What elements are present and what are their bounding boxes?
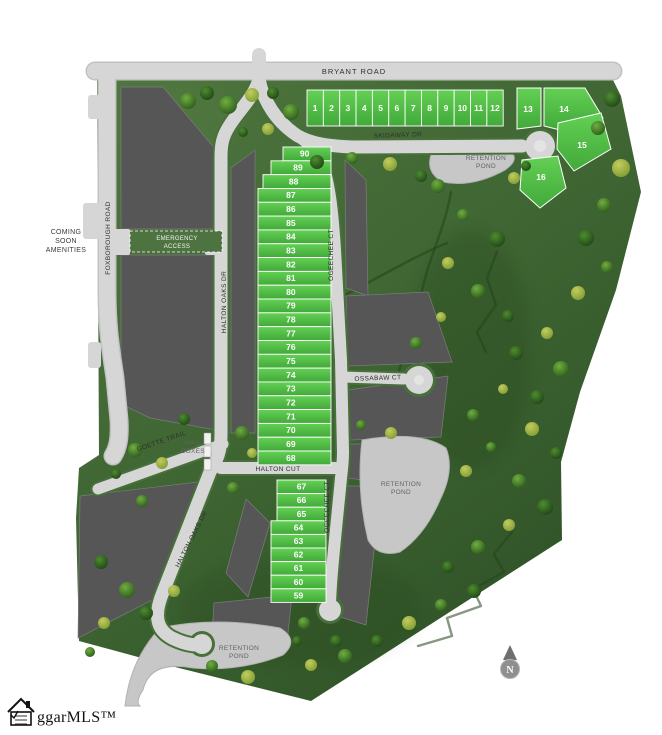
tree bbox=[227, 482, 239, 494]
lot-strip-north: 123456789101112 bbox=[307, 90, 503, 126]
tree bbox=[503, 519, 515, 531]
road-label-ogeechee-upper: OGEECHEE CT bbox=[328, 229, 335, 281]
lot-number: 8 bbox=[427, 103, 432, 113]
parcel bbox=[121, 255, 216, 430]
lot-number: 76 bbox=[286, 342, 296, 352]
lot-strip-south: 676665646362616059 bbox=[271, 480, 326, 602]
lot-number: 86 bbox=[286, 204, 296, 214]
tree bbox=[571, 286, 585, 300]
lot-number: 64 bbox=[294, 522, 304, 532]
lot-number: 68 bbox=[286, 453, 296, 463]
lot-number: 66 bbox=[297, 495, 307, 505]
tree bbox=[457, 209, 469, 221]
tree bbox=[85, 647, 95, 657]
tree bbox=[578, 230, 594, 246]
tree bbox=[442, 561, 454, 573]
road-stub-emergency bbox=[112, 229, 130, 255]
lot-number: 85 bbox=[286, 218, 296, 228]
lot-number: 72 bbox=[286, 397, 296, 407]
tree bbox=[402, 616, 416, 630]
lot-number: 13 bbox=[523, 104, 533, 114]
tree bbox=[200, 86, 214, 100]
mail-boxes-label: MAIL bbox=[185, 440, 201, 447]
lot-number: 7 bbox=[411, 103, 416, 113]
lot-number: 89 bbox=[293, 163, 303, 173]
tree bbox=[305, 659, 317, 671]
retention-pond-label: RETENTION bbox=[466, 155, 506, 162]
tree bbox=[219, 96, 237, 114]
tree bbox=[111, 469, 121, 479]
retention-pond-label: RETENTION bbox=[381, 481, 421, 488]
lot-number: 10 bbox=[458, 103, 468, 113]
lot-number: 69 bbox=[286, 439, 296, 449]
tree bbox=[460, 465, 472, 477]
mailboxes bbox=[204, 433, 211, 470]
tree bbox=[612, 159, 630, 177]
tree bbox=[330, 635, 342, 647]
tree bbox=[530, 390, 544, 404]
tree bbox=[238, 127, 248, 137]
lot-number: 5 bbox=[378, 103, 383, 113]
north-arrow-icon bbox=[503, 645, 517, 660]
lot-number: 11 bbox=[474, 103, 483, 113]
emergency-access-label: ACCESS bbox=[164, 244, 190, 250]
tree bbox=[383, 157, 397, 171]
tree bbox=[486, 442, 496, 452]
tree bbox=[604, 91, 620, 107]
lot-number: 59 bbox=[294, 590, 304, 600]
tree bbox=[525, 422, 539, 436]
tree bbox=[371, 635, 383, 647]
tree bbox=[267, 87, 279, 99]
tree bbox=[136, 495, 148, 507]
retention-pond-label: RETENTION bbox=[219, 645, 259, 652]
road-label-bryant: BRYANT ROAD bbox=[322, 67, 386, 76]
tree bbox=[310, 155, 324, 169]
tree bbox=[119, 582, 135, 598]
parcel bbox=[231, 150, 255, 433]
tree bbox=[471, 284, 485, 298]
tree bbox=[247, 448, 257, 458]
tree bbox=[262, 123, 274, 135]
house-icon bbox=[8, 699, 34, 725]
lot-number: 78 bbox=[286, 315, 296, 325]
lot-number: 9 bbox=[444, 103, 449, 113]
logo: ggarMLS™ bbox=[8, 699, 116, 726]
lot-number: 77 bbox=[286, 328, 296, 338]
tree bbox=[467, 584, 481, 598]
compass-north-label: N bbox=[506, 665, 514, 676]
road-label-ogeechee-lower: OGEECHEE CT bbox=[324, 481, 331, 533]
tree bbox=[415, 170, 427, 182]
lot-number: 82 bbox=[286, 259, 296, 269]
lot-number: 4 bbox=[362, 103, 367, 113]
lot-number: 6 bbox=[395, 103, 400, 113]
retention-pond-label: POND bbox=[229, 653, 249, 660]
tree bbox=[298, 617, 310, 629]
tree bbox=[283, 104, 299, 120]
lot-number: 2 bbox=[329, 103, 334, 113]
mail-boxes-label: BOXES bbox=[181, 448, 205, 455]
tree bbox=[550, 447, 562, 459]
tree bbox=[235, 426, 249, 440]
lot-strip-central: 9089888786858483828180797877767574737271… bbox=[258, 147, 331, 465]
lot-number: 74 bbox=[286, 370, 296, 380]
tree bbox=[512, 474, 526, 488]
tree bbox=[431, 179, 445, 193]
retention-pond-label: POND bbox=[391, 489, 411, 496]
tree bbox=[502, 310, 514, 322]
lot-number: 16 bbox=[536, 172, 546, 182]
lot-number: 81 bbox=[286, 273, 296, 283]
tree bbox=[245, 88, 259, 102]
tree bbox=[292, 636, 302, 646]
site-plan-svg: 123456789101112 908988878685848382818079… bbox=[0, 0, 662, 735]
tree bbox=[410, 337, 422, 349]
lot-number: 62 bbox=[294, 550, 304, 560]
site-plan-map: 123456789101112 908988878685848382818079… bbox=[0, 0, 662, 735]
retention-pond-label: POND bbox=[476, 163, 496, 170]
road-stub bbox=[88, 342, 101, 368]
lot-number: 15 bbox=[577, 140, 587, 150]
tree bbox=[509, 346, 523, 360]
compass: N bbox=[501, 645, 520, 679]
lot-number: 90 bbox=[300, 149, 310, 159]
tree bbox=[436, 312, 446, 322]
tree bbox=[98, 617, 110, 629]
lot-number: 75 bbox=[286, 356, 296, 366]
tree bbox=[139, 606, 153, 620]
emergency-access-label: EMERGENCY bbox=[156, 236, 197, 242]
lot-number: 71 bbox=[286, 411, 296, 421]
tree bbox=[241, 670, 255, 684]
tree bbox=[168, 585, 180, 597]
lot-number: 80 bbox=[286, 287, 296, 297]
lot-number: 63 bbox=[294, 536, 304, 546]
lot-number: 79 bbox=[286, 301, 296, 311]
tree bbox=[206, 660, 218, 672]
tree bbox=[180, 93, 196, 109]
tree bbox=[601, 261, 613, 273]
lot-number: 70 bbox=[286, 425, 296, 435]
lot-number: 14 bbox=[559, 104, 569, 114]
tree bbox=[591, 121, 605, 135]
tree bbox=[521, 161, 531, 171]
lot-number: 88 bbox=[289, 176, 299, 186]
lot-number: 1 bbox=[313, 103, 318, 113]
tree bbox=[442, 257, 454, 269]
tree bbox=[541, 327, 553, 339]
coming-soon-label: AMENITIES bbox=[46, 247, 86, 254]
lot-number: 61 bbox=[294, 563, 304, 573]
tree bbox=[94, 555, 108, 569]
tree bbox=[553, 361, 569, 377]
lot-number: 67 bbox=[297, 482, 307, 492]
tree bbox=[346, 152, 358, 164]
lot-number: 12 bbox=[490, 103, 500, 113]
tree bbox=[356, 420, 366, 430]
lot-number: 60 bbox=[294, 577, 304, 587]
tree bbox=[338, 649, 352, 663]
parcel bbox=[345, 160, 368, 296]
lot-number: 83 bbox=[286, 245, 296, 255]
road-label-halton-oaks-upper: HALTON OAKS DR bbox=[221, 271, 228, 333]
tree bbox=[537, 499, 553, 515]
tree bbox=[498, 384, 508, 394]
road-label-foxborough: FOXBOROUGH ROAD bbox=[105, 201, 112, 275]
logo-text: ggarMLS™ bbox=[37, 709, 116, 726]
road-stub bbox=[88, 95, 101, 119]
tree bbox=[508, 172, 520, 184]
coming-soon-label: COMING bbox=[51, 229, 82, 236]
coming-soon-label: SOON bbox=[55, 238, 77, 245]
road-label-halton-cut: HALTON CUT bbox=[256, 466, 301, 473]
tree bbox=[385, 427, 397, 439]
tree bbox=[178, 413, 190, 425]
culdesac-halton-oaks bbox=[192, 634, 212, 654]
tree bbox=[597, 198, 611, 212]
lot-number: 84 bbox=[286, 232, 296, 242]
tree bbox=[471, 540, 485, 554]
lot-number: 73 bbox=[286, 384, 296, 394]
tree bbox=[467, 409, 479, 421]
tree bbox=[156, 457, 168, 469]
lot-number: 3 bbox=[346, 103, 351, 113]
road-stub bbox=[83, 203, 101, 239]
tree bbox=[435, 599, 447, 611]
lot-number: 87 bbox=[286, 190, 296, 200]
lot-number: 65 bbox=[297, 509, 307, 519]
tree bbox=[489, 231, 505, 247]
